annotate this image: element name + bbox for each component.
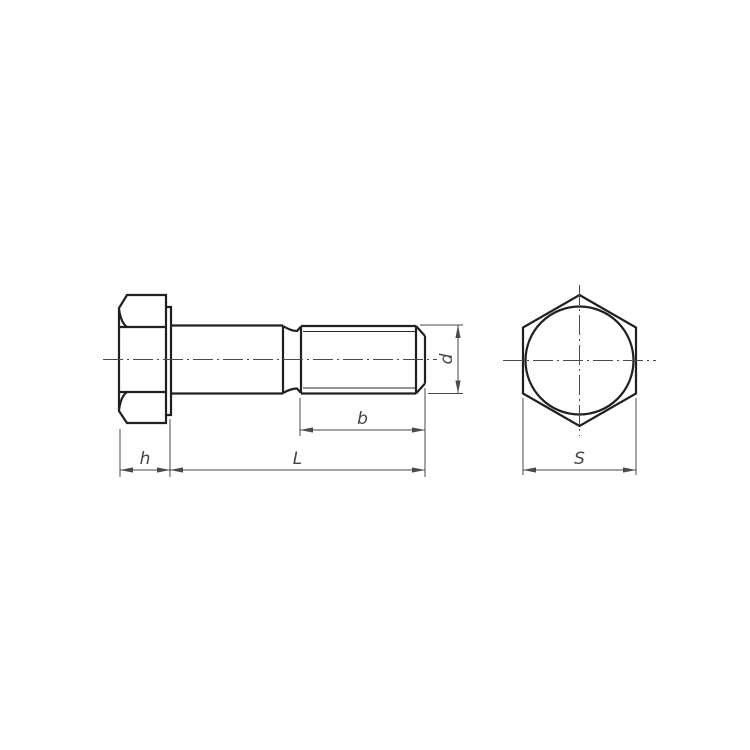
bolt-end-view bbox=[503, 285, 656, 436]
dim-label-h: h bbox=[120, 449, 170, 469]
dim-label-d: d bbox=[437, 354, 457, 365]
bolt-technical-drawing: h L b d S bbox=[0, 0, 750, 750]
dim-label-b: b bbox=[300, 409, 425, 429]
d-arrow-bottom bbox=[455, 381, 460, 394]
technical-drawing-svg bbox=[0, 0, 750, 750]
hex-head-chamfer-arc-top bbox=[119, 309, 127, 327]
thread-runout-bottom bbox=[283, 389, 301, 394]
dim-label-S: S bbox=[523, 449, 636, 469]
dim-label-L: L bbox=[170, 449, 425, 469]
hex-head-chamfer-arc-bottom bbox=[119, 392, 127, 410]
bolt-side-view bbox=[103, 295, 437, 423]
thread-runout-top bbox=[283, 326, 301, 331]
thread-end-chamfer-top bbox=[416, 326, 425, 336]
thread-end-chamfer-bottom bbox=[416, 384, 425, 394]
d-arrow-top bbox=[455, 325, 460, 338]
